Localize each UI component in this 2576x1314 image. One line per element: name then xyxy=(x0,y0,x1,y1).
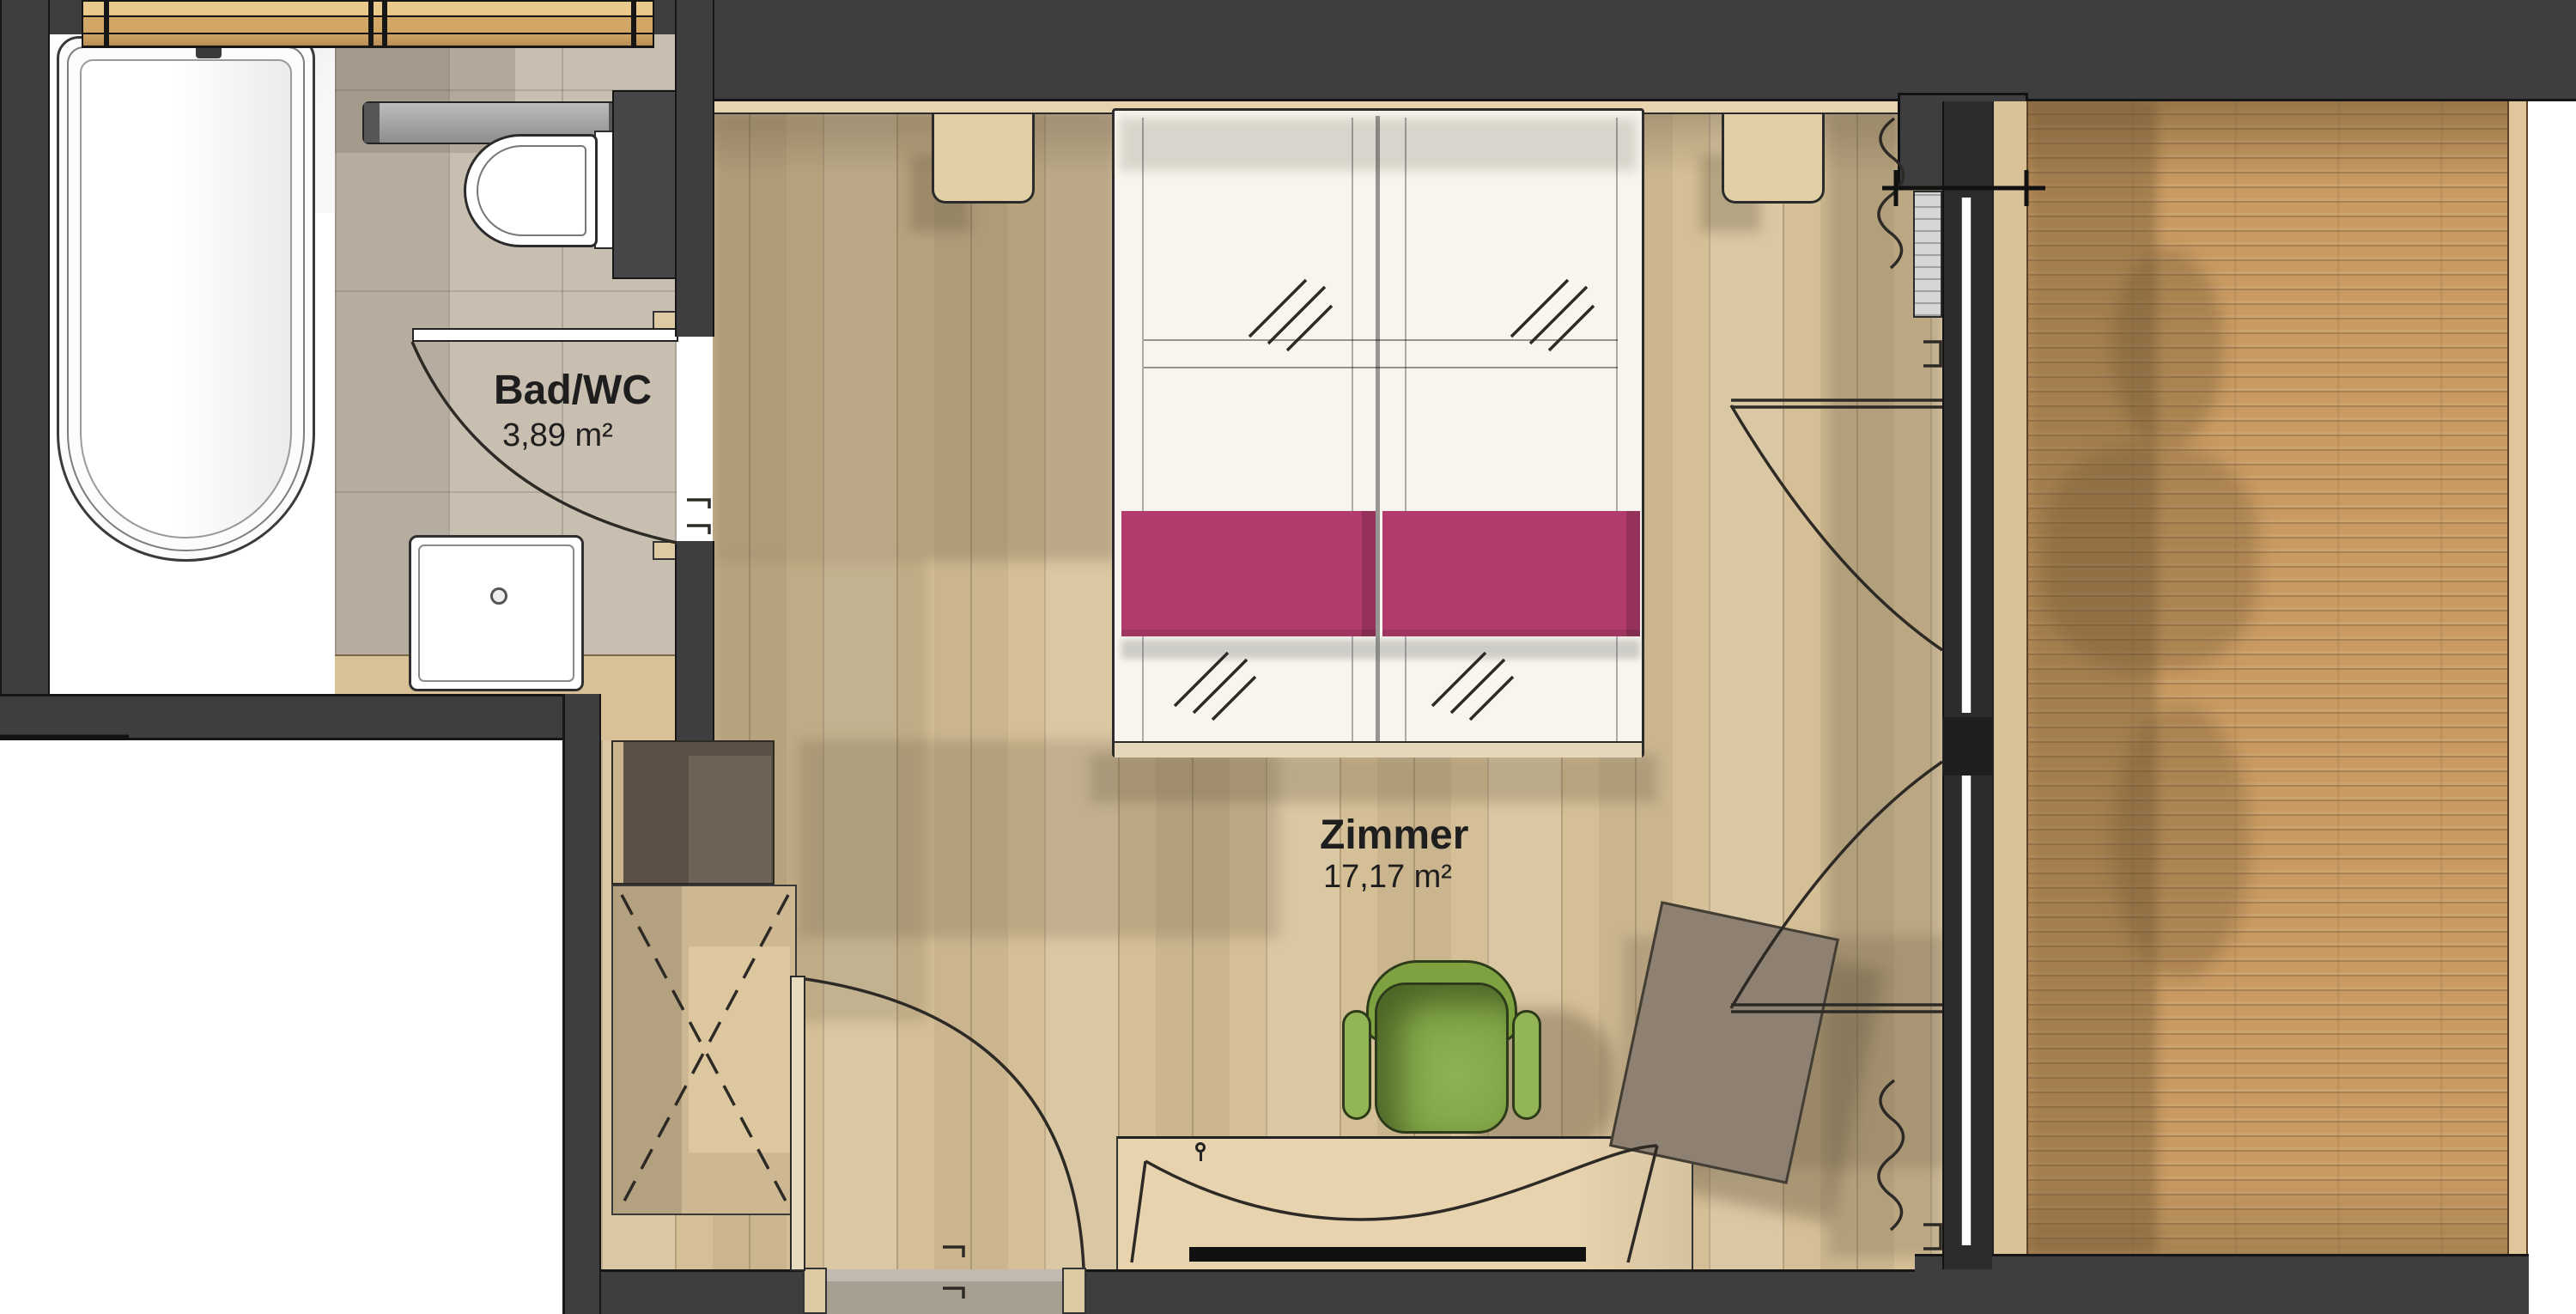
washbasin xyxy=(409,535,584,691)
wardrobe xyxy=(611,885,797,1215)
niche-inner-panel xyxy=(689,756,771,883)
double-bed xyxy=(1112,108,1644,757)
window-mullion-4 xyxy=(631,2,636,46)
bed-sheet-fold-2 xyxy=(1144,367,1618,368)
floorplan-page: { "labels": { "bathroom": { "name": "Bad… xyxy=(0,0,2576,1314)
wall-bottom-balcony xyxy=(1915,1254,2529,1314)
wardrobe-shade xyxy=(613,886,682,1214)
armchair-seat xyxy=(1375,982,1509,1134)
bed-sheet-fold-1 xyxy=(1144,339,1618,341)
bed-runner-right xyxy=(1382,511,1640,636)
balcony-curtain-shadow-3 xyxy=(2112,704,2250,979)
wardrobe-inner-panel xyxy=(689,946,790,1153)
wall-bathroom-bottom xyxy=(0,694,601,740)
wall-top xyxy=(696,0,2576,101)
bedroom-label: Zimmer xyxy=(1320,814,1468,857)
bathroom-door-post-top xyxy=(653,311,677,330)
balcony-bottom-shadow xyxy=(2028,1177,2516,1252)
wall-bathroom-right-upper xyxy=(675,0,714,337)
balcony-curtain-shadow-2 xyxy=(2044,447,2258,670)
bathroom-door-post-bottom xyxy=(653,541,677,560)
radiator xyxy=(1913,191,1942,318)
entry-threshold-strip xyxy=(826,1269,1063,1281)
wall-bathroom-right-lower xyxy=(675,541,714,740)
bathroom-label: Bad/WC xyxy=(494,369,652,412)
bathroom-area-label: 3,89 m² xyxy=(502,419,613,453)
bedroom-area-label: 17,17 m² xyxy=(1323,861,1452,895)
window-mullion-3 xyxy=(382,2,387,46)
bed-foot-shadow xyxy=(1091,754,1657,802)
bathroom-cabinet xyxy=(612,90,678,279)
window-mullion-1 xyxy=(104,2,109,46)
bed-foot-rail xyxy=(1115,741,1642,757)
wall-left-lower xyxy=(562,694,601,1314)
bathroom-door-leaf xyxy=(412,328,678,342)
nightstand-left xyxy=(932,113,1035,204)
bed-runner-left xyxy=(1121,511,1376,636)
glass-icon xyxy=(1195,1142,1206,1153)
bathroom-wood-corner xyxy=(601,694,677,740)
washbasin-inner-line xyxy=(418,544,574,682)
nightstand-right xyxy=(1722,113,1825,204)
glazing-lower xyxy=(1961,775,1971,1245)
bed-mattress-divide xyxy=(1376,116,1380,755)
window-mullion-2 xyxy=(368,2,374,46)
window-mid-post xyxy=(1942,717,1992,776)
bathroom-window xyxy=(82,0,654,48)
glazing-upper xyxy=(1961,198,1971,713)
entry-door-leaf xyxy=(790,976,805,1271)
bathtub xyxy=(57,36,315,562)
toilet-bowl xyxy=(464,134,598,247)
tv-panel xyxy=(1189,1247,1586,1262)
bed-runner-shadow xyxy=(1121,640,1640,659)
toilet-seat-line xyxy=(477,145,586,236)
balcony-curtain-shadow-1 xyxy=(2112,249,2224,447)
niche-edge-strip xyxy=(613,742,623,883)
armchair-arm-left xyxy=(1342,1010,1371,1120)
entry-door-post-left xyxy=(803,1268,827,1314)
glass-icon-stem xyxy=(1200,1153,1202,1161)
bathtub-basin xyxy=(80,59,292,538)
wall-bottom xyxy=(1086,1269,1945,1314)
wall-bathroom-left xyxy=(0,0,50,740)
wall-bathroom-top-corner xyxy=(50,0,82,34)
balcony-edge-board xyxy=(2507,101,2528,1254)
armchair-arm-right xyxy=(1512,1010,1541,1120)
mirror-endcap-left xyxy=(364,103,380,143)
niche-shelf xyxy=(611,740,775,885)
floor-plan: Bad/WC 3,89 m² Zimmer 17,17 m² xyxy=(0,0,2576,1314)
armchair xyxy=(1342,960,1541,1136)
washbasin-drain-icon xyxy=(490,587,507,605)
window-outer-sill xyxy=(1992,101,2028,1254)
wall-bottom-left-of-door xyxy=(601,1269,803,1314)
entry-door-post-right xyxy=(1062,1268,1086,1314)
